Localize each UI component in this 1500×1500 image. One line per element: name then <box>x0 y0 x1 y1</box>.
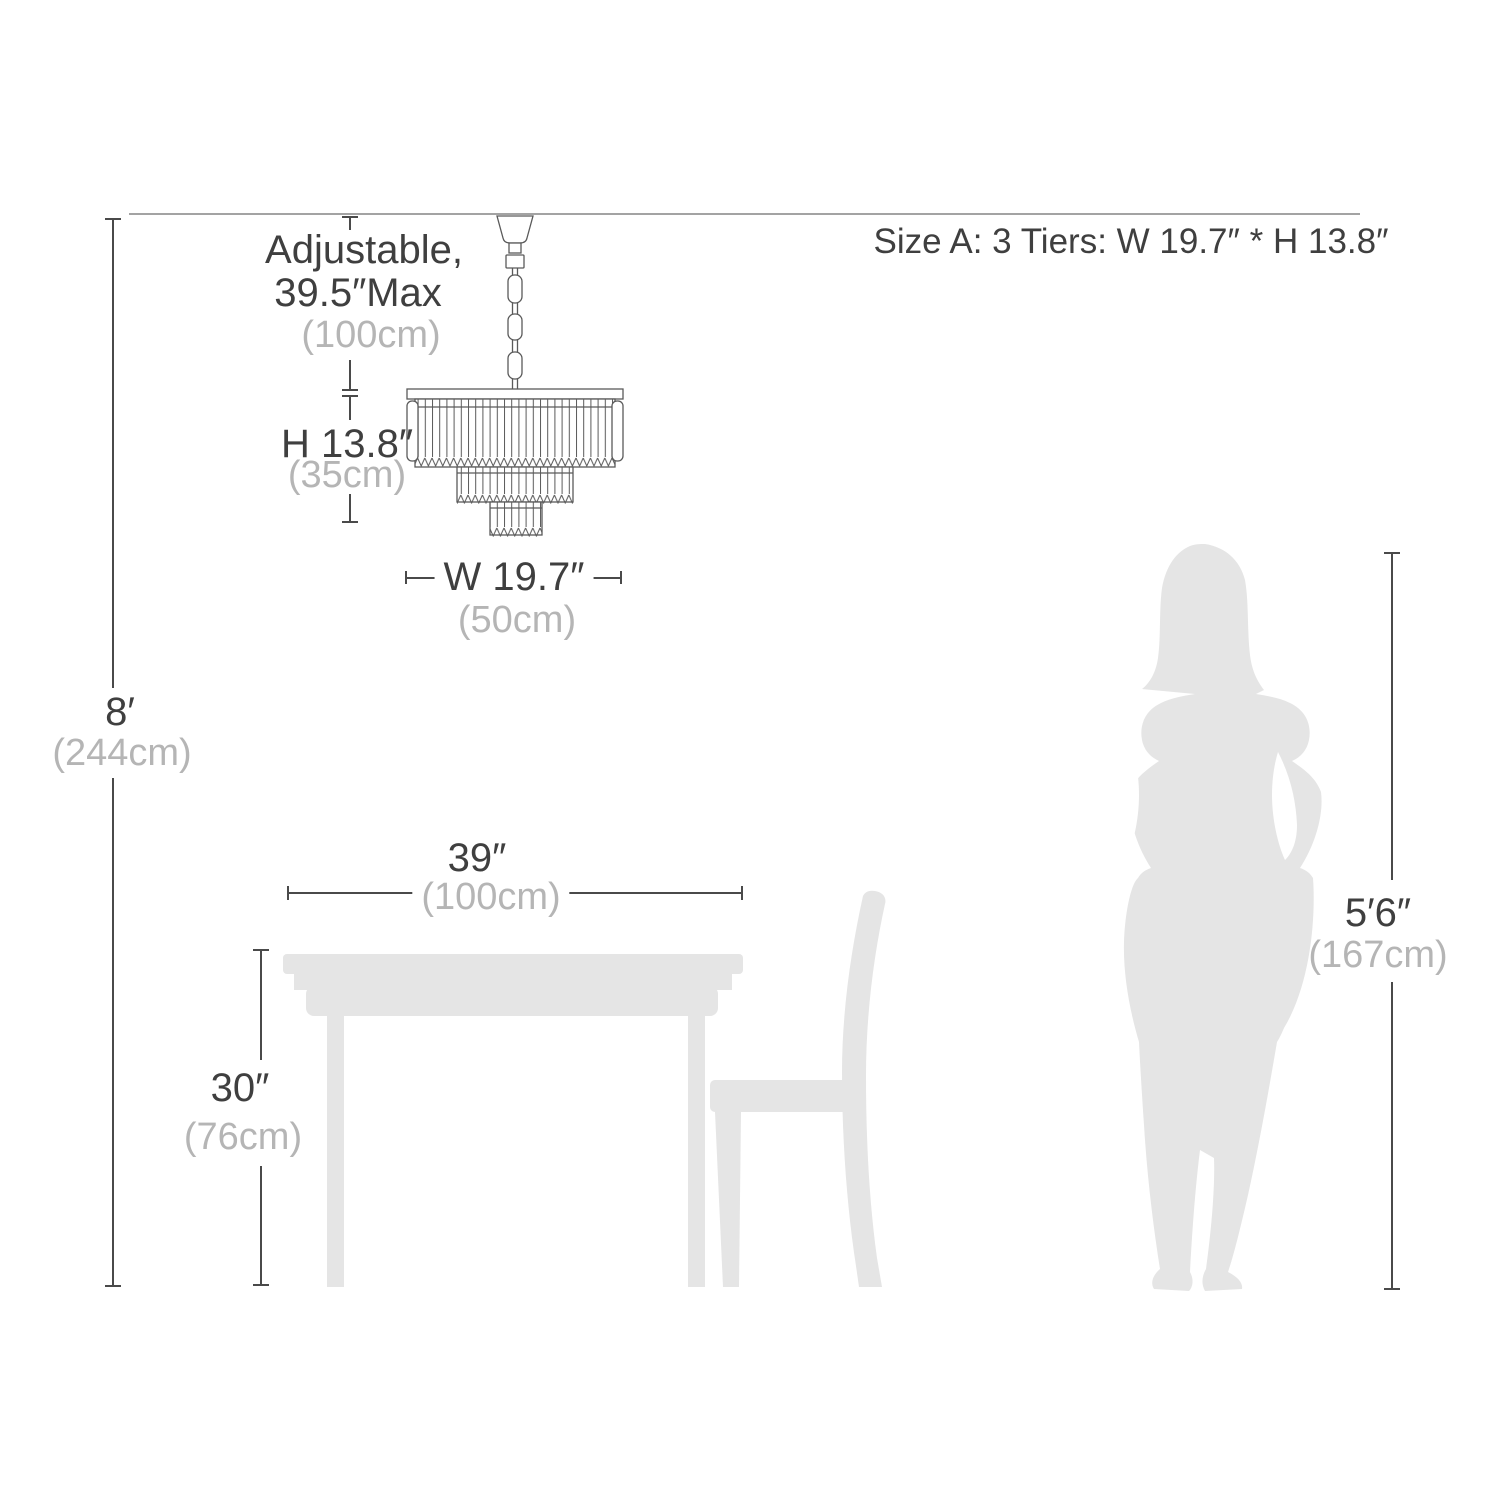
dim-line <box>1391 982 1393 1289</box>
table-apron <box>306 986 718 1016</box>
chandelier-tier-1 <box>407 399 623 467</box>
chandelier-canopy <box>497 216 533 243</box>
adjustable-label-line2: 39.5″Max <box>274 273 442 313</box>
dim-line <box>1391 552 1393 880</box>
adjustable-label-line1: Adjustable, <box>265 230 463 270</box>
dim-break-mark <box>342 389 358 391</box>
chain-link <box>508 275 522 303</box>
dim-line <box>112 218 114 688</box>
chandelier-tier-3 <box>490 502 542 537</box>
person-silhouette <box>1114 544 1322 1291</box>
person-arm-gap-left <box>1114 752 1139 860</box>
chain-link <box>508 314 522 340</box>
table-height-metric-label: (76cm) <box>184 1118 302 1156</box>
table-silhouette <box>283 954 743 1287</box>
dim-line <box>260 949 262 1060</box>
ceiling-height-metric-label: (244cm) <box>52 734 191 772</box>
ceiling-line <box>129 213 1360 215</box>
chandelier-bead <box>506 255 524 268</box>
fixture-width-label: W 19.7″ <box>435 557 594 597</box>
table-leg-right <box>688 1014 705 1287</box>
chandelier-top-plate <box>407 389 623 399</box>
dim-line <box>112 778 114 1285</box>
dim-tick <box>1384 1288 1400 1290</box>
chain-link <box>508 352 522 379</box>
size-note-label: Size A: 3 Tiers: W 19.7″ * H 13.8″ <box>873 224 1388 259</box>
dim-line <box>349 494 351 522</box>
dim-tick <box>620 571 622 584</box>
chair-front-leg <box>715 1112 741 1287</box>
ceiling-height-label: 8′ <box>105 692 135 732</box>
table-height-label: 30″ <box>211 1068 270 1108</box>
person-height-label: 5′6″ <box>1345 893 1411 933</box>
chandelier-tier-2 <box>457 467 573 504</box>
table-width-label: 39″ <box>448 838 507 878</box>
dim-tick <box>741 886 743 900</box>
adjustable-metric-label: (100cm) <box>301 316 440 354</box>
dimension-diagram: Size A: 3 Tiers: W 19.7″ * H 13.8″ Adjus… <box>0 0 1500 1500</box>
fixture-height-metric-label: (35cm) <box>288 456 406 494</box>
table-width-metric-label: (100cm) <box>412 878 569 916</box>
chandelier-collar <box>509 243 521 253</box>
person-body <box>1124 544 1322 1291</box>
dim-line <box>349 360 351 389</box>
chair-seat <box>710 1080 863 1112</box>
dim-line <box>260 1166 262 1286</box>
dim-tick <box>105 1285 121 1287</box>
table-leg-left <box>327 1014 344 1287</box>
person-height-metric-label: (167cm) <box>1308 936 1447 974</box>
dim-line <box>349 397 351 420</box>
tier-end-prism <box>612 401 623 461</box>
chair-silhouette <box>710 891 885 1287</box>
dim-tick <box>253 1284 269 1286</box>
dim-tick <box>342 521 358 523</box>
fixture-width-metric-label: (50cm) <box>458 601 576 639</box>
